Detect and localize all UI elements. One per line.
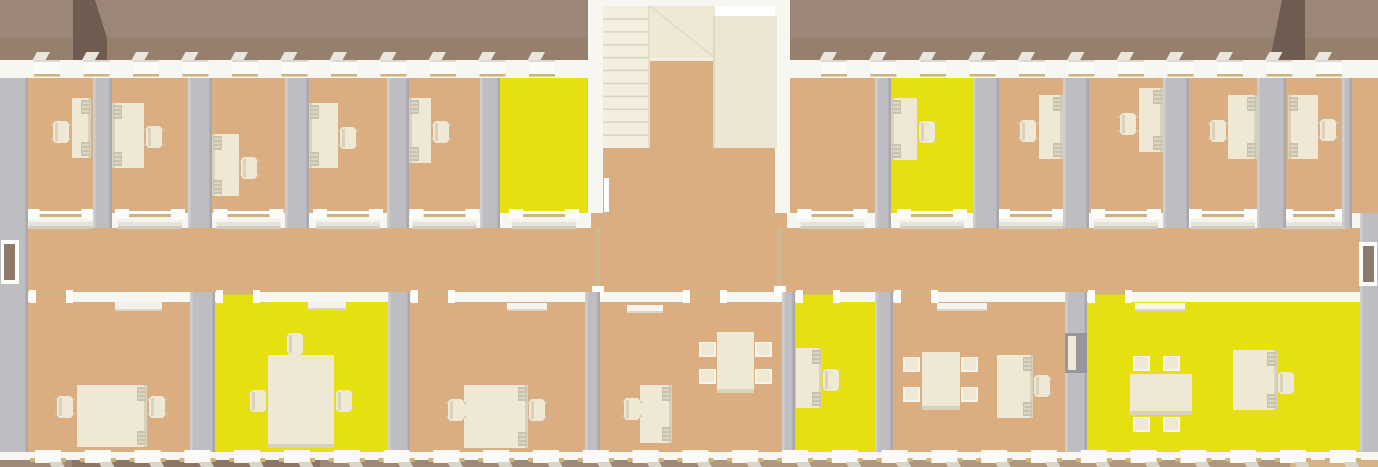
office-door-leaf bbox=[1191, 222, 1255, 226]
office-door-shadow bbox=[217, 226, 281, 229]
partition-wall-edge bbox=[1284, 78, 1287, 228]
window-sill bbox=[1267, 74, 1293, 77]
meeting-chair-seat bbox=[1135, 357, 1148, 369]
office-chair-back bbox=[148, 128, 151, 146]
window bbox=[1118, 60, 1144, 76]
office-door-leaf bbox=[1282, 222, 1346, 226]
partition-wall-edge bbox=[188, 78, 191, 228]
window bbox=[970, 60, 996, 76]
desk bbox=[77, 385, 147, 447]
office-door-jamb bbox=[854, 209, 868, 219]
partition-wall-edge bbox=[793, 292, 796, 452]
partition-wall bbox=[973, 78, 999, 228]
partition-wall-edge bbox=[387, 78, 390, 228]
window-sill bbox=[133, 74, 159, 77]
stair-upper-flight-block bbox=[713, 16, 777, 148]
window bbox=[821, 60, 847, 76]
office-door-shadow bbox=[999, 226, 1063, 229]
office-door-shadow bbox=[316, 226, 380, 229]
east-exterior-door bbox=[1363, 246, 1374, 282]
window bbox=[1031, 450, 1057, 463]
office-chair-back bbox=[1022, 122, 1025, 140]
window bbox=[232, 60, 258, 76]
window-sill bbox=[84, 74, 110, 77]
window bbox=[135, 450, 161, 463]
meeting-table bbox=[1130, 374, 1192, 415]
window bbox=[920, 60, 946, 76]
office-door-leaf bbox=[29, 222, 93, 226]
window bbox=[430, 60, 456, 76]
office-door-shadow bbox=[512, 226, 576, 229]
partition-wall-edge bbox=[1187, 78, 1190, 228]
meeting-chair-seat bbox=[905, 388, 918, 400]
open-door-leaf-edge bbox=[627, 311, 663, 313]
window bbox=[483, 450, 509, 463]
room-door-jamb bbox=[253, 290, 260, 303]
office-chair-back bbox=[1036, 377, 1039, 395]
window bbox=[1230, 450, 1256, 463]
partition-wall-edge bbox=[782, 292, 785, 452]
south-facade bbox=[0, 450, 1378, 467]
window bbox=[1180, 450, 1206, 463]
window-sill bbox=[183, 74, 209, 77]
office-door-jamb bbox=[953, 209, 967, 219]
window-frame bbox=[480, 60, 506, 62]
window bbox=[1131, 450, 1157, 463]
partition-wall bbox=[875, 292, 893, 452]
office-chair-back bbox=[289, 335, 292, 353]
office-chair-back bbox=[55, 123, 58, 141]
room-door-jamb bbox=[796, 290, 803, 303]
window-sill bbox=[1316, 74, 1342, 77]
partition-wall-edge bbox=[190, 292, 193, 452]
stair-stringer bbox=[648, 6, 650, 148]
office-chair-back bbox=[342, 129, 345, 147]
office-chair-back bbox=[1280, 374, 1283, 392]
partition-wall-edge bbox=[1350, 78, 1353, 228]
room-door-threshold bbox=[416, 292, 450, 295]
room-door-threshold bbox=[34, 292, 68, 295]
office-t6-floor-highlight bbox=[500, 78, 588, 213]
partition-wall-edge bbox=[110, 78, 113, 228]
window-sill bbox=[34, 74, 60, 77]
window-frame bbox=[1168, 60, 1194, 62]
window bbox=[981, 450, 1007, 463]
sideboard-edge bbox=[308, 308, 346, 310]
partition-wall-edge bbox=[875, 78, 878, 228]
office-chair-back bbox=[59, 398, 62, 416]
office-door-jamb bbox=[509, 209, 523, 219]
partition-wall-edge bbox=[1257, 78, 1260, 228]
partition-wall-edge bbox=[875, 292, 878, 452]
office-door-jamb bbox=[466, 209, 480, 219]
meeting-chair-seat bbox=[905, 358, 918, 370]
partition-wall-edge bbox=[407, 78, 410, 228]
room-door-jamb bbox=[683, 290, 690, 303]
partition-wall-edge bbox=[213, 292, 216, 452]
window bbox=[1081, 450, 1107, 463]
office-door-leaf bbox=[1094, 222, 1158, 226]
window-frame bbox=[1267, 60, 1293, 62]
office-door-jamb bbox=[565, 209, 579, 219]
office-chair-back bbox=[1322, 121, 1325, 139]
office-door-leaf bbox=[316, 222, 380, 226]
window-frame bbox=[183, 60, 209, 62]
meeting-table bbox=[922, 352, 960, 410]
window bbox=[433, 450, 459, 463]
partition-wall-edge bbox=[498, 78, 501, 228]
room-door-jamb bbox=[29, 290, 36, 303]
office-chair-back bbox=[1122, 115, 1125, 133]
office-door-leaf bbox=[512, 222, 576, 226]
partition-wall-edge bbox=[388, 292, 391, 452]
window bbox=[183, 60, 209, 76]
window-frame bbox=[381, 60, 407, 62]
office-door-shadow bbox=[801, 226, 865, 229]
office-chair-back bbox=[1212, 122, 1215, 140]
open-door-leaf-edge bbox=[937, 309, 987, 311]
office-door-leaf bbox=[413, 222, 477, 226]
meeting-chair-seat bbox=[963, 358, 976, 370]
window-sill bbox=[1168, 74, 1194, 77]
meeting-table bbox=[717, 332, 754, 393]
meeting-table bbox=[268, 355, 334, 448]
partition-wall-edge bbox=[1063, 78, 1066, 228]
open-door-leaf-edge bbox=[507, 309, 547, 311]
office-door-shadow bbox=[1191, 226, 1255, 229]
screenshot-root bbox=[0, 0, 1378, 467]
office-door-jamb bbox=[214, 209, 228, 219]
window-frame bbox=[430, 60, 456, 62]
window-sill bbox=[1118, 74, 1144, 77]
meeting-chair-seat bbox=[701, 370, 714, 382]
office-door-shadow bbox=[1094, 226, 1158, 229]
window-frame bbox=[282, 60, 308, 62]
office-chair-back bbox=[531, 401, 534, 419]
office-door-jamb bbox=[897, 209, 911, 219]
meeting-table-edge bbox=[1130, 411, 1192, 415]
meeting-table-edge bbox=[268, 444, 334, 448]
hall-wall-cap bbox=[777, 228, 781, 290]
window bbox=[1330, 450, 1356, 463]
room-door-threshold bbox=[801, 292, 835, 295]
office-door-jamb bbox=[1188, 209, 1202, 219]
meeting-table-edge bbox=[717, 389, 754, 393]
window-sill bbox=[381, 74, 407, 77]
meeting-chair-seat bbox=[757, 343, 770, 355]
meeting-chair-seat bbox=[1165, 418, 1178, 430]
room-door-jamb bbox=[216, 290, 223, 303]
window-frame bbox=[529, 60, 555, 62]
window-sill bbox=[970, 74, 996, 77]
room-door-jamb bbox=[720, 290, 727, 303]
window bbox=[234, 450, 260, 463]
room-door-jamb bbox=[448, 290, 455, 303]
room-door-jamb bbox=[833, 290, 840, 303]
office-door-jamb bbox=[1244, 209, 1258, 219]
partition-wall-edge bbox=[307, 78, 310, 228]
meeting-chair-seat bbox=[1165, 357, 1178, 369]
partition-door-leaf bbox=[1068, 336, 1076, 370]
window bbox=[533, 450, 559, 463]
room-door-threshold bbox=[221, 292, 255, 295]
partition-wall-edge bbox=[480, 78, 483, 228]
meeting-chair-seat bbox=[701, 343, 714, 355]
office-door-leaf bbox=[801, 222, 865, 226]
office-chair-back bbox=[921, 123, 924, 141]
window-frame bbox=[1019, 60, 1045, 62]
west-exterior-door bbox=[4, 244, 15, 280]
window-sill bbox=[821, 74, 847, 77]
window bbox=[1267, 60, 1293, 76]
office-door-jamb bbox=[270, 209, 284, 219]
window bbox=[284, 450, 310, 463]
window-sill bbox=[871, 74, 897, 77]
partition-wall-edge bbox=[285, 78, 288, 228]
window bbox=[1168, 60, 1194, 76]
window bbox=[282, 60, 308, 76]
window bbox=[480, 60, 506, 76]
meeting-chair-seat bbox=[1135, 418, 1148, 430]
partition-wall-edge bbox=[997, 78, 1000, 228]
corridor-north-wall bbox=[28, 213, 591, 228]
office-door-jamb bbox=[171, 209, 185, 219]
window-sill bbox=[331, 74, 357, 77]
window bbox=[35, 450, 61, 463]
office-door-jamb bbox=[115, 209, 129, 219]
window-frame bbox=[970, 60, 996, 62]
window bbox=[529, 60, 555, 76]
room-door-jamb bbox=[66, 290, 73, 303]
office-chair-back bbox=[252, 392, 255, 410]
window-sill bbox=[282, 74, 308, 77]
stair-block-edge bbox=[713, 16, 715, 148]
office-door-shadow bbox=[29, 226, 93, 229]
window-sill bbox=[1217, 74, 1243, 77]
window-frame bbox=[331, 60, 357, 62]
window bbox=[85, 450, 111, 463]
window-frame bbox=[1069, 60, 1095, 62]
partition-wall-edge bbox=[585, 292, 588, 452]
window-frame bbox=[1316, 60, 1342, 62]
partition-wall-edge bbox=[1342, 78, 1345, 228]
office-door-jamb bbox=[313, 209, 327, 219]
meeting-b7-floor-highlight bbox=[1087, 301, 1360, 452]
meeting-table-edge bbox=[922, 406, 960, 410]
office-door-shadow bbox=[1282, 226, 1346, 229]
partition-wall-edge bbox=[598, 292, 601, 452]
room-door-jamb bbox=[894, 290, 901, 303]
partition-wall bbox=[1063, 78, 1089, 228]
office-chair-back bbox=[450, 401, 453, 419]
window bbox=[334, 450, 360, 463]
window bbox=[871, 60, 897, 76]
office-door-leaf bbox=[118, 222, 182, 226]
partition-wall bbox=[188, 78, 212, 228]
open-door-leaf-edge bbox=[1135, 309, 1185, 311]
office-door-leaf bbox=[217, 222, 281, 226]
partition-wall bbox=[387, 78, 409, 228]
window bbox=[832, 450, 858, 463]
partition-wall bbox=[480, 78, 500, 228]
window-sill bbox=[232, 74, 258, 77]
window bbox=[782, 450, 808, 463]
office-door-shadow bbox=[900, 226, 964, 229]
window bbox=[381, 60, 407, 76]
office-chair-back bbox=[151, 398, 154, 416]
partition-wall bbox=[1163, 78, 1189, 228]
room-door-jamb bbox=[1125, 290, 1132, 303]
window-frame bbox=[1217, 60, 1243, 62]
window bbox=[331, 60, 357, 76]
hall-radiator bbox=[604, 178, 609, 212]
window-frame bbox=[232, 60, 258, 62]
stairwell-east-wall bbox=[775, 0, 790, 213]
partition-wall bbox=[93, 78, 112, 228]
office-door-jamb bbox=[410, 209, 424, 219]
partition-wall-edge bbox=[1163, 78, 1166, 228]
stairwell-void-floor bbox=[650, 61, 713, 148]
window bbox=[931, 450, 957, 463]
window-frame bbox=[133, 60, 159, 62]
room-door-jamb bbox=[411, 290, 418, 303]
partition-wall-edge bbox=[210, 78, 213, 228]
window-frame bbox=[821, 60, 847, 62]
office-door-leaf bbox=[999, 222, 1063, 226]
sideboard-edge bbox=[115, 309, 162, 311]
office-door-jamb bbox=[1091, 209, 1105, 219]
partition-wall bbox=[388, 292, 410, 452]
stairwell-north-wall bbox=[588, 0, 790, 6]
office-chair-back bbox=[243, 159, 246, 177]
office-door-leaf bbox=[900, 222, 964, 226]
window bbox=[384, 450, 410, 463]
window-sill bbox=[920, 74, 946, 77]
meeting-chair-seat bbox=[757, 370, 770, 382]
partition-wall bbox=[285, 78, 309, 228]
office-door-shadow bbox=[118, 226, 182, 229]
window-sill bbox=[430, 74, 456, 77]
window-sill bbox=[1019, 74, 1045, 77]
window bbox=[1019, 60, 1045, 76]
office-chair-back bbox=[435, 123, 438, 141]
meeting-chair-seat bbox=[963, 388, 976, 400]
office-door-jamb bbox=[369, 209, 383, 219]
window bbox=[633, 450, 659, 463]
window-frame bbox=[871, 60, 897, 62]
stair-flight bbox=[603, 6, 650, 148]
room-door-threshold bbox=[1093, 292, 1127, 295]
floorplan-render bbox=[0, 0, 1378, 467]
window bbox=[1217, 60, 1243, 76]
partition-wall-edge bbox=[1087, 78, 1090, 228]
window-frame bbox=[34, 60, 60, 62]
partition-wall-edge bbox=[408, 292, 411, 452]
window bbox=[1316, 60, 1342, 76]
room-door-jamb bbox=[1088, 290, 1095, 303]
hall-wall-cap bbox=[596, 228, 600, 290]
window bbox=[882, 450, 908, 463]
window bbox=[682, 450, 708, 463]
office-door-jamb bbox=[1147, 209, 1161, 219]
partition-wall-edge bbox=[889, 78, 892, 228]
window-frame bbox=[1118, 60, 1144, 62]
window-frame bbox=[84, 60, 110, 62]
partition-wall-edge bbox=[973, 78, 976, 228]
window-sill bbox=[529, 74, 555, 77]
stairwell-west-wall bbox=[588, 0, 603, 213]
office-door-shadow bbox=[413, 226, 477, 229]
window bbox=[133, 60, 159, 76]
office-chair-back bbox=[626, 400, 629, 418]
room-door-jamb bbox=[931, 290, 938, 303]
window bbox=[732, 450, 758, 463]
office-door-jamb bbox=[798, 209, 812, 219]
partition-wall-edge bbox=[93, 78, 96, 228]
partition-wall bbox=[1257, 78, 1286, 228]
office-chair-back bbox=[825, 371, 828, 389]
window-sill bbox=[480, 74, 506, 77]
window bbox=[1280, 450, 1306, 463]
room-door-threshold bbox=[688, 292, 722, 295]
window bbox=[84, 60, 110, 76]
office-chair-back bbox=[338, 392, 341, 410]
wall-edge bbox=[26, 78, 29, 455]
partition-wall-edge bbox=[891, 292, 894, 452]
stair-nosing bbox=[650, 58, 713, 61]
window bbox=[34, 60, 60, 76]
window-sill bbox=[1069, 74, 1095, 77]
window bbox=[583, 450, 609, 463]
partition-wall bbox=[190, 292, 215, 452]
window bbox=[1069, 60, 1095, 76]
window bbox=[184, 450, 210, 463]
window-frame bbox=[920, 60, 946, 62]
room-door-threshold bbox=[899, 292, 933, 295]
